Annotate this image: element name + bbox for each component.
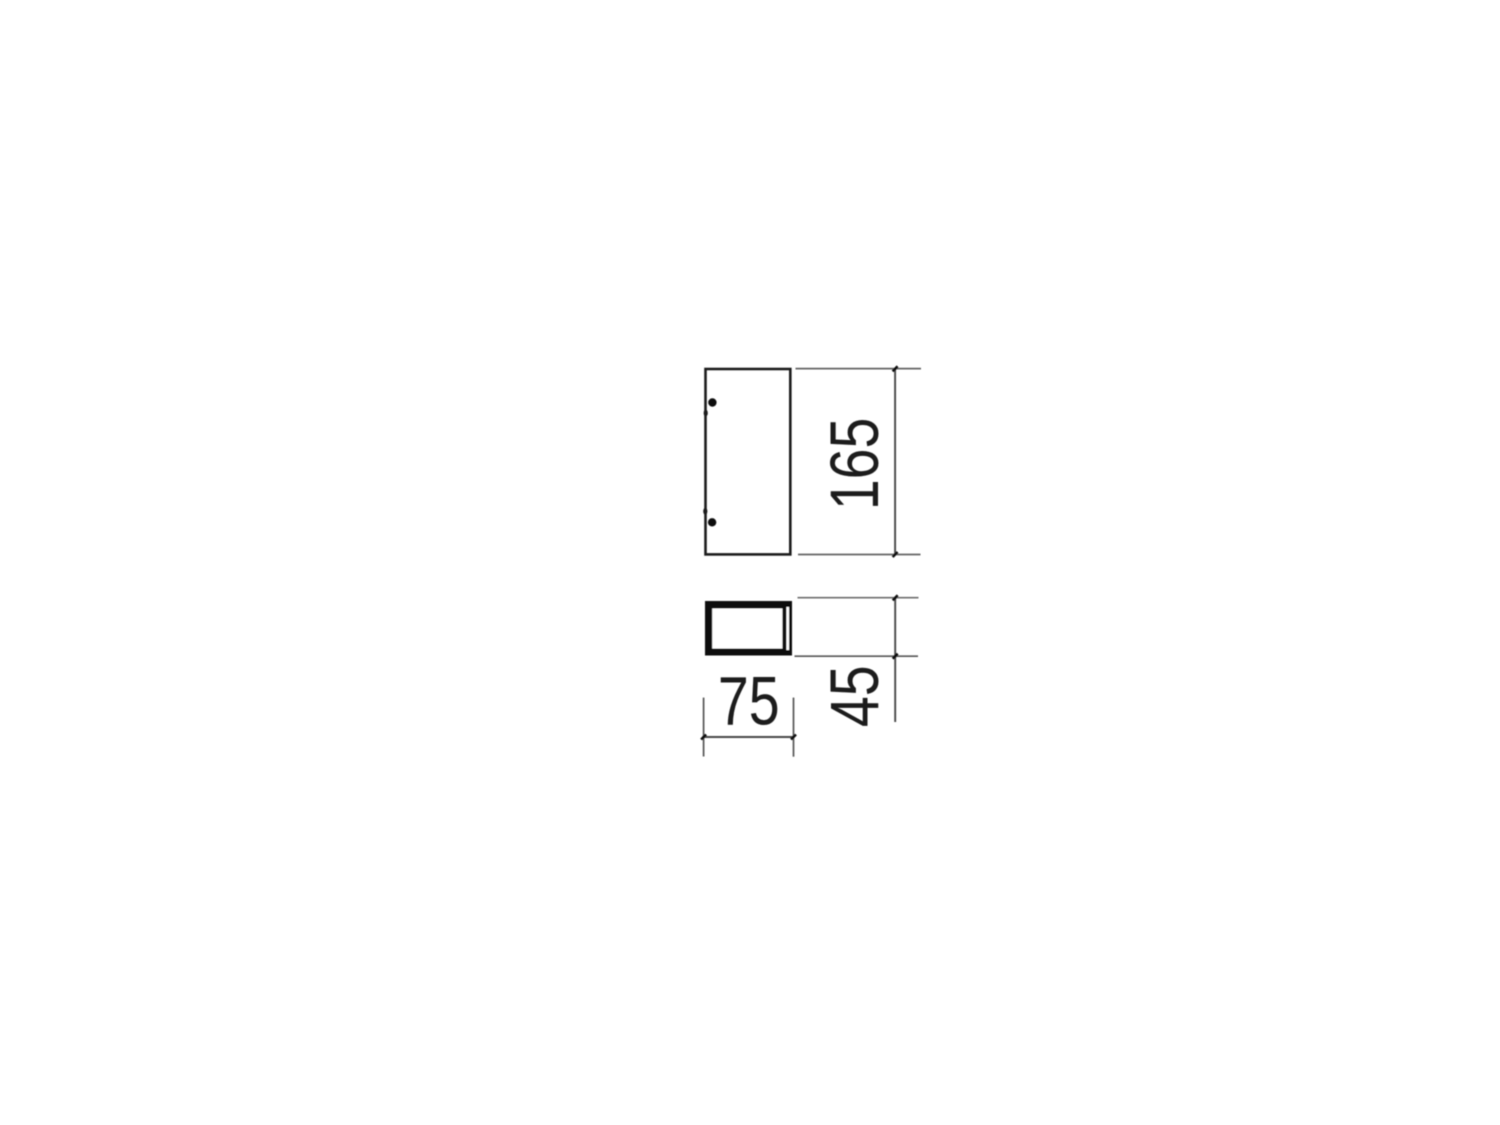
svg-text:45: 45 [818, 665, 894, 727]
svg-text:165: 165 [818, 418, 894, 511]
svg-text:75: 75 [718, 664, 780, 740]
